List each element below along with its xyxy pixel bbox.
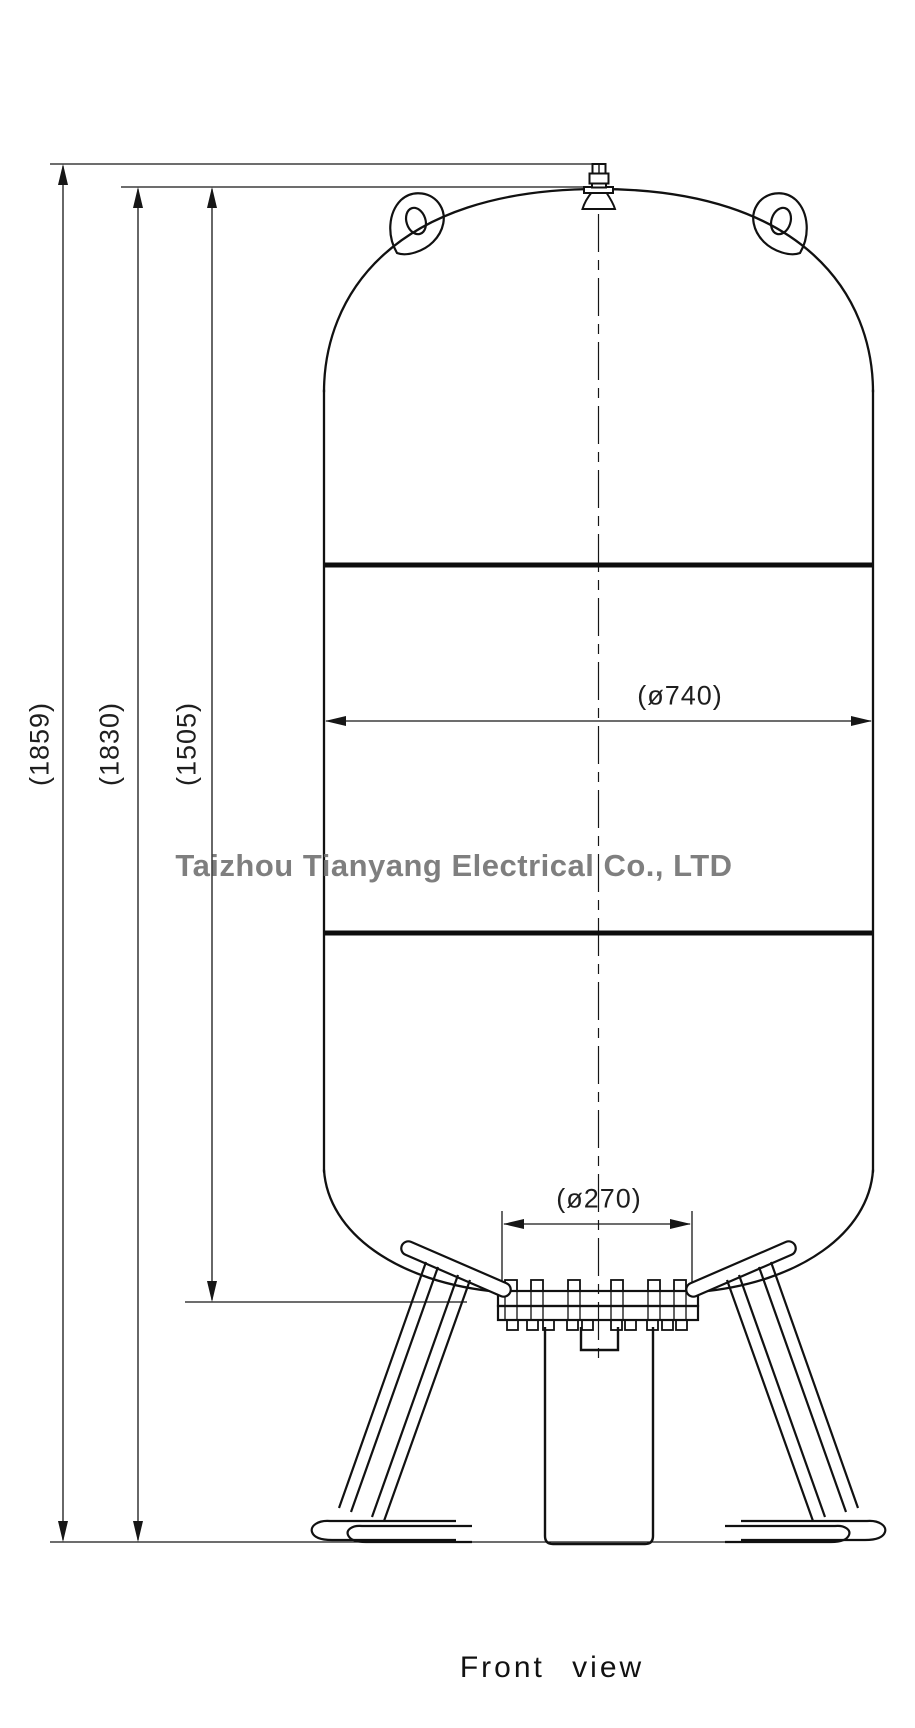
company-watermark: Taizhou Tianyang Electrical Co., LTD (175, 848, 732, 884)
dimension-label-body-diameter: (ø740) (637, 681, 723, 712)
lifting-lug-left (390, 193, 443, 254)
dimension-label-vessel-height: (1830) (95, 702, 126, 786)
dimension-label-overall-height: (1859) (25, 702, 56, 786)
foot-pad-front (741, 1521, 885, 1540)
support-leg-left (312, 1239, 513, 1542)
valve-bell (583, 192, 616, 209)
lifting-lug-right (753, 193, 806, 254)
support-leg-right (684, 1239, 885, 1542)
flange-bolts-bottom (507, 1320, 687, 1330)
air-valve (583, 164, 616, 209)
dimension-label-shell-height: (1505) (172, 702, 203, 786)
flange-bolts-top (505, 1280, 686, 1291)
foot-pad-front (312, 1521, 456, 1540)
view-title: Front view (460, 1651, 644, 1685)
support-pipe (545, 1327, 653, 1544)
drawing-sheet: (1859) (1830) (1505) (ø740) (ø270) Taizh… (0, 0, 915, 1728)
dimension-label-base-diameter: (ø270) (556, 1184, 642, 1215)
